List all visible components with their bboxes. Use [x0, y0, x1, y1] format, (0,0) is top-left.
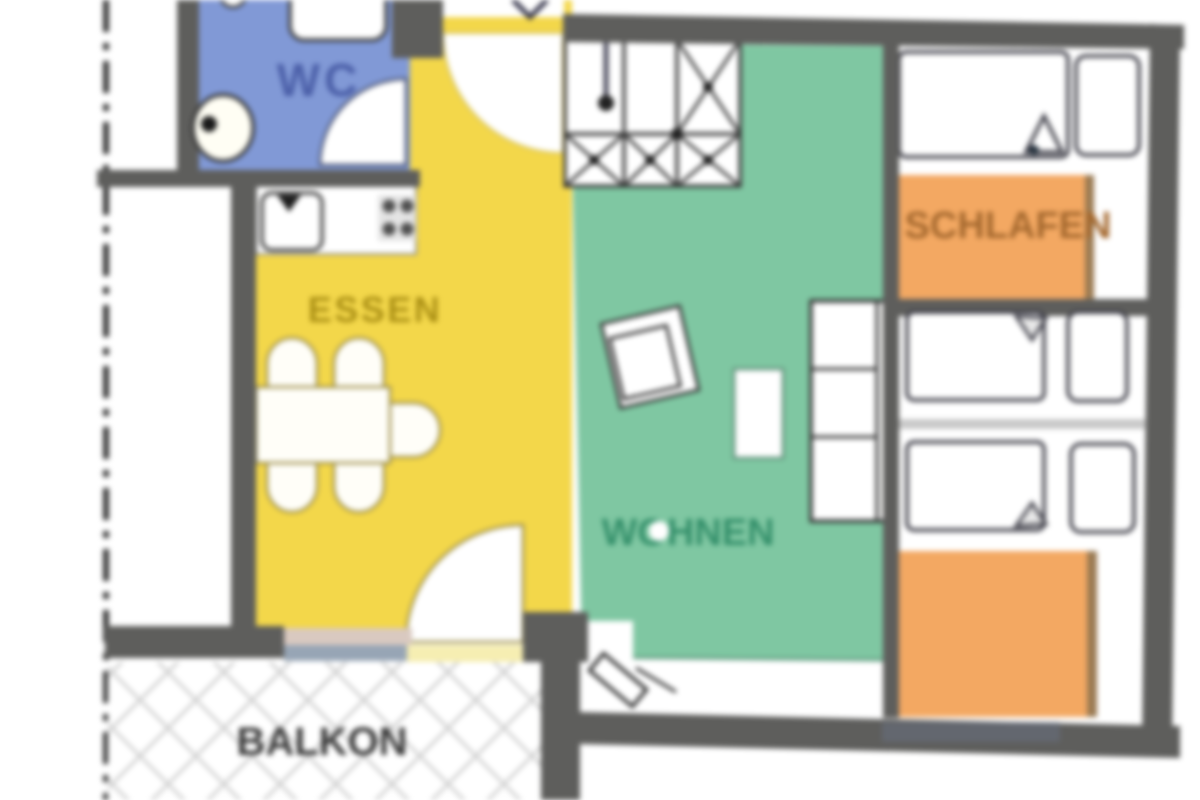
svg-text:BALKON: BALKON: [236, 720, 407, 764]
svg-text:ESSEN: ESSEN: [308, 289, 443, 330]
svg-text:SCHLAFEN: SCHLAFEN: [905, 205, 1112, 247]
svg-text:WC: WC: [277, 54, 362, 106]
svg-text:WOHNEN: WOHNEN: [601, 512, 774, 554]
